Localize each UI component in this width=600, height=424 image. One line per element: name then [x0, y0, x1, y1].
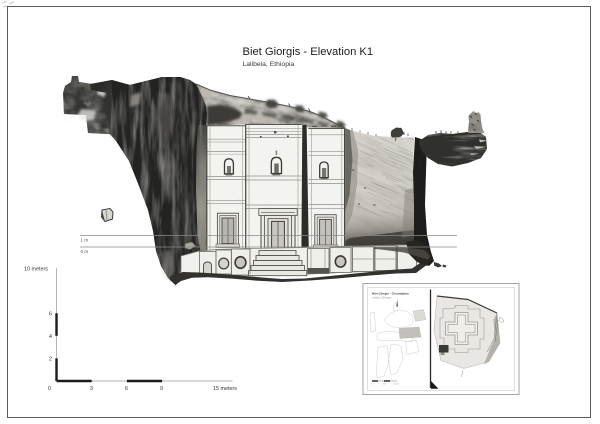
svg-text:6: 6 [125, 386, 128, 392]
svg-text:2: 2 [49, 357, 52, 363]
svg-text:0: 0 [48, 386, 51, 392]
svg-text:1 m: 1 m [81, 238, 89, 243]
svg-text:10 meters: 10 meters [24, 267, 48, 273]
svg-text:Lalibela, Ethiopia: Lalibela, Ethiopia [372, 296, 392, 299]
svg-text:0 m: 0 m [81, 249, 89, 254]
svg-text:15 meters: 15 meters [213, 386, 237, 392]
svg-text:3: 3 [90, 386, 93, 392]
svg-text:20 m: 20 m [394, 384, 399, 386]
svg-text:6: 6 [49, 312, 52, 318]
svg-text:Biet Giorgis - Groundplan: Biet Giorgis - Groundplan [372, 292, 409, 296]
svg-text:4: 4 [49, 334, 52, 340]
svg-text:9: 9 [160, 386, 163, 392]
